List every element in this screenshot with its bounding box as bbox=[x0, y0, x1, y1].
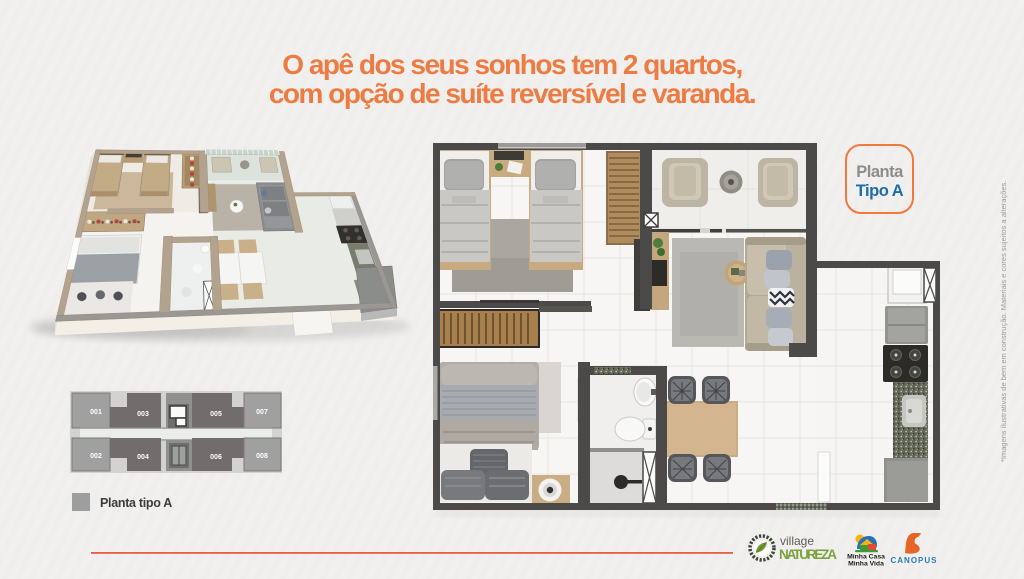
svg-text:007: 007 bbox=[256, 409, 268, 416]
svg-text:004: 004 bbox=[137, 454, 149, 461]
svg-text:NATUREZA: NATUREZA bbox=[779, 547, 837, 562]
svg-text:005: 005 bbox=[210, 411, 222, 418]
svg-text:Minha Vida: Minha Vida bbox=[848, 561, 884, 568]
svg-text:CANOPUS: CANOPUS bbox=[890, 556, 937, 565]
svg-text:006: 006 bbox=[210, 454, 222, 461]
svg-text:Minha Casa: Minha Casa bbox=[847, 554, 885, 561]
svg-text:008: 008 bbox=[256, 453, 268, 460]
svg-text:001: 001 bbox=[90, 409, 102, 416]
svg-text:002: 002 bbox=[90, 453, 102, 460]
svg-text:village: village bbox=[780, 534, 814, 548]
svg-text:003: 003 bbox=[137, 411, 149, 418]
